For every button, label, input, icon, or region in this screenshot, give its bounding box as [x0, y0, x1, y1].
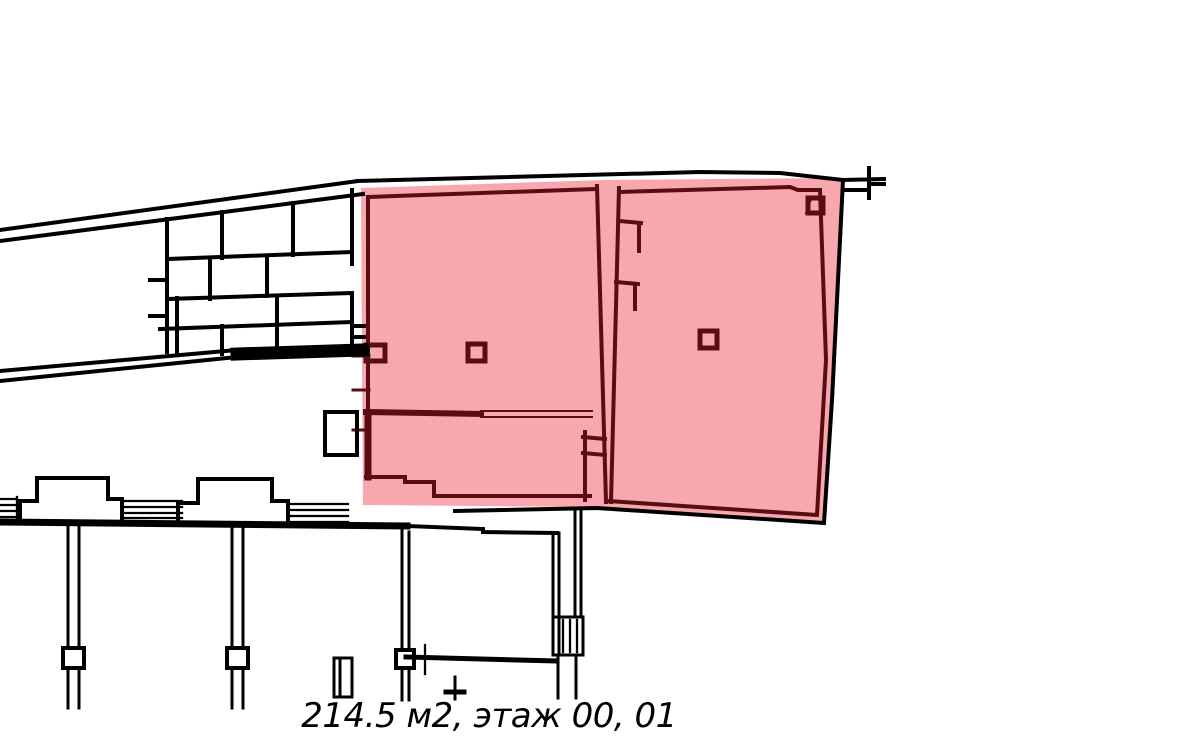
floor-plan-canvas	[0, 0, 1200, 745]
end-wall-bar	[237, 350, 363, 354]
thick-walls	[406, 657, 557, 692]
dimension-arrow	[843, 168, 884, 198]
area-caption: 214.5 м2, этаж 00, 01	[301, 696, 676, 736]
floor-plan: 214.5 м2, этаж 00, 01	[0, 0, 1200, 745]
unit-partition-thick	[366, 412, 481, 414]
thin-walls	[68, 508, 583, 708]
facade-band-wall	[0, 522, 407, 526]
